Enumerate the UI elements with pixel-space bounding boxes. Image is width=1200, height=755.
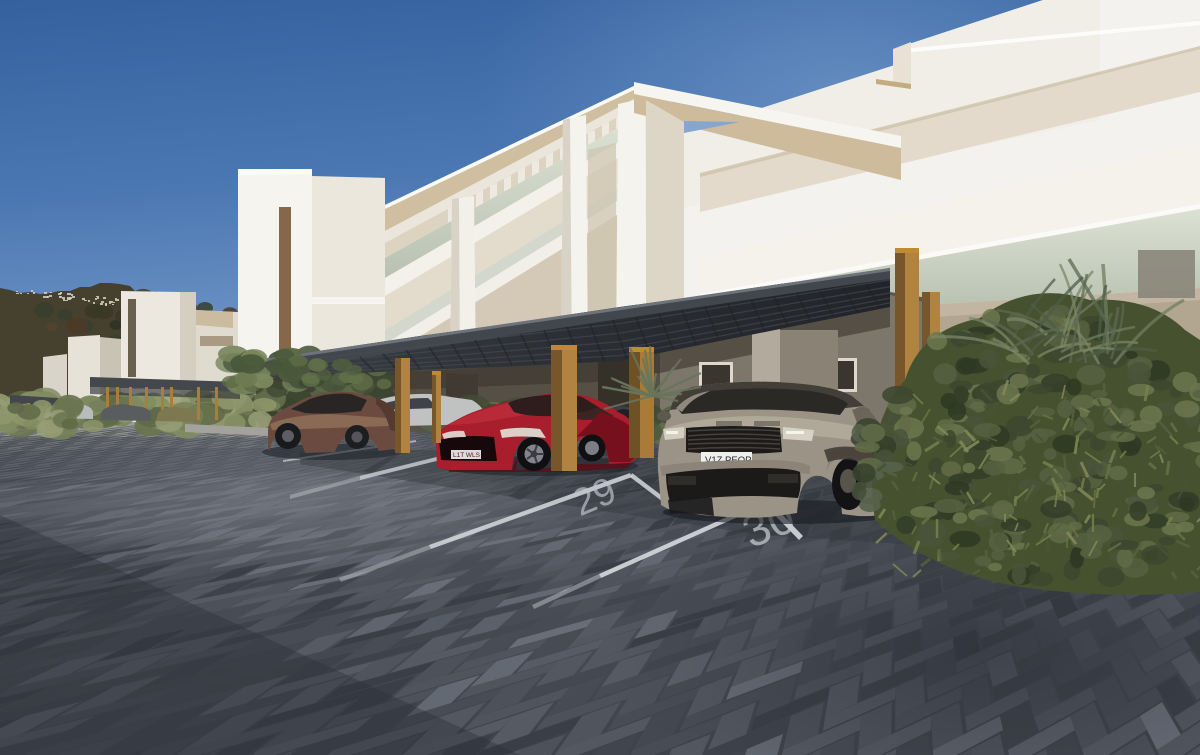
svg-text:L1T WLS: L1T WLS (453, 452, 481, 459)
